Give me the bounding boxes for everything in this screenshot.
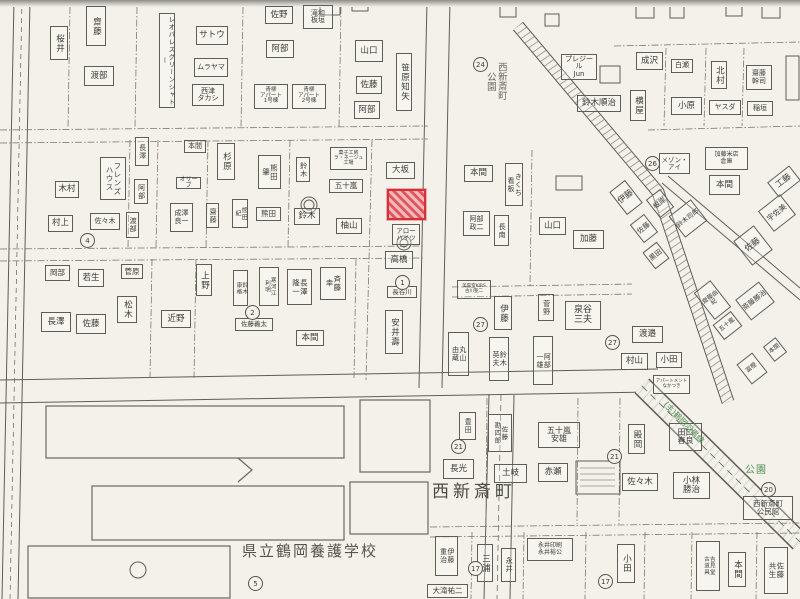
building-label: 阿部 政二 — [463, 211, 490, 236]
building-label: 本間 — [184, 140, 206, 153]
building-label: オリーブ — [176, 177, 201, 189]
building-label: 五十嵐 — [329, 179, 363, 193]
building-label: 柚山 — [336, 218, 362, 234]
building-label: 長澤 — [135, 137, 149, 166]
map-number-marker: 21 — [451, 439, 466, 454]
building-label: 吉見堂 古道具 — [696, 541, 720, 591]
building-label: きくち 看板 — [505, 163, 523, 206]
building-label: 丸山 由蔵 — [448, 332, 469, 376]
building-label: 長南 — [494, 215, 509, 246]
building-label: 加藤米店 倉庫 — [705, 147, 748, 170]
building-label: 桜井 — [50, 26, 68, 60]
map-number-marker: 20 — [761, 482, 776, 497]
building-label: 上野 — [196, 264, 212, 296]
building-label: 土岐 — [494, 464, 527, 483]
building-label: 成沢 — [636, 52, 663, 70]
building-label: 松木 — [117, 296, 137, 323]
building-label: 鈴木 英夫 — [489, 337, 509, 381]
building-label: 木村 — [55, 181, 79, 198]
building-label: レオパレスグリーンシャトー — [159, 13, 175, 108]
building-label: 佐々木 — [90, 213, 120, 230]
building-label: 加藤 — [573, 230, 604, 249]
building-label: 岡部 — [45, 265, 70, 281]
building-label: 熊田 紀 — [232, 199, 248, 228]
building-label: 本間 — [728, 552, 746, 587]
building-label: 伊藤 — [494, 296, 512, 330]
building-label: 齋藤 — [86, 6, 106, 46]
building-label: 青柳 アパート 1号棟 — [254, 84, 288, 109]
building-label: 永井 — [501, 548, 516, 582]
map-number-marker: 1 — [395, 275, 410, 290]
building-label: 笹原知矢 — [396, 53, 412, 111]
building-label: 泉谷 三夫 — [565, 301, 601, 330]
map-number-marker: 4 — [80, 233, 95, 248]
building-label: 小田 — [656, 352, 682, 368]
building-label: 成澤 良一 — [170, 203, 193, 232]
building-label: 長光 — [443, 459, 474, 479]
building-label: 阿部 — [134, 179, 148, 204]
map-number-marker: 2 — [245, 305, 260, 320]
building-label: 赤瀬 — [538, 463, 568, 482]
building-label: 熊田 肇 — [258, 155, 281, 189]
building-label: 青柳 アパート 2号棟 — [292, 84, 326, 109]
building-label: 佐藤 — [76, 314, 106, 334]
scan-edge — [0, 0, 800, 7]
building-label: 若生 — [78, 269, 104, 287]
school-building-outlines — [28, 400, 430, 598]
area-label: 公園 — [745, 465, 767, 477]
map-number-marker: 24 — [473, 57, 488, 72]
building-label: 大滝祐二 — [427, 584, 468, 598]
building-label: 西新斎町 公民館 — [743, 496, 793, 520]
building-label: 佐藤 共生 — [764, 547, 788, 594]
building-label: フレンズ ハウス — [100, 157, 126, 200]
building-label: 熊田 — [256, 207, 281, 221]
building-label: 鈴木 康格 — [233, 270, 248, 306]
building-label: 鈴木 — [296, 157, 310, 182]
building-label: 五十嵐 安雄 — [538, 422, 580, 448]
building-label: 菅野 — [538, 294, 554, 321]
building-label: ヤスダ — [709, 100, 741, 115]
building-label: 伊藤 重治 — [435, 536, 458, 576]
building-label: 佐藤義太 — [235, 318, 273, 331]
building-label: 齋藤 — [206, 203, 219, 228]
building-label: 大坂 — [386, 162, 415, 179]
map-number-marker: 27 — [473, 317, 488, 332]
building-label: 本間 — [709, 175, 740, 195]
building-label: 寒河江 利明 — [259, 267, 279, 306]
building-label: 山口 — [355, 40, 383, 62]
building-label: 横屋 — [630, 90, 646, 121]
building-label: 村上 — [48, 215, 73, 232]
building-label: 安井壽 — [385, 310, 403, 354]
area-label: 県立鶴岡養護学校 — [242, 543, 378, 560]
building-label: 美容室KIRS 古川聖二 — [457, 280, 491, 299]
building-label: ムラヤマ — [194, 58, 228, 77]
map-number-marker: 27 — [605, 335, 620, 350]
building-label: 阿部 — [354, 101, 380, 119]
building-label: 鈴木 — [294, 208, 320, 225]
building-label: 本間 — [296, 330, 324, 346]
building-label: 渡部 — [126, 212, 139, 238]
building-label: 杉原 — [217, 143, 235, 180]
building-label: 滝和 板垣 — [303, 5, 333, 29]
building-label: 小林 勝治 — [673, 472, 710, 499]
building-label: サトウ — [196, 26, 228, 45]
building-label: 鈴木順治 — [577, 95, 621, 112]
map-number-marker: 5 — [248, 576, 263, 591]
building-label: アパートメント なかつき — [653, 375, 690, 394]
building-label: 佐野 — [265, 6, 293, 24]
building-label: 豊田 — [459, 412, 476, 440]
building-label: アロー ハイツ — [392, 224, 420, 245]
map-number-marker: 26 — [645, 156, 660, 171]
building-label: 渡邉 — [632, 326, 663, 343]
building-label: 齋藤 幹司 — [746, 65, 772, 90]
building-label: 小田 — [617, 544, 635, 583]
residential-map: 齋藤桜井渡部レオパレスグリーンシャトーサトウムラヤマ西津 タカシ佐野滝和 板垣阿… — [0, 0, 800, 599]
building-label: メゾン・ アイ — [659, 153, 690, 174]
building-label: 斉藤 幸 — [320, 267, 346, 300]
building-label: 北村 — [711, 61, 727, 89]
building-label: 阿部 — [266, 40, 294, 58]
building-label: 佐藤 — [356, 76, 382, 94]
building-label: 長澤 — [41, 312, 71, 332]
building-label: 菅原 — [121, 264, 143, 279]
building-label: 西津 タカシ — [192, 84, 224, 106]
building-label: 白瀬 — [671, 59, 693, 73]
building-label: 菓子工房 ラ・ネージュ 工場 — [330, 147, 367, 170]
building-label: 殿岡 — [628, 424, 645, 454]
map-number-marker: 17 — [468, 561, 483, 576]
building-label: 長澤 隆一 — [287, 269, 312, 305]
building-label: 稲垣 — [747, 101, 773, 116]
building-label: 佐藤 勘四郎 — [488, 414, 512, 452]
building-label: 高橋 — [385, 251, 413, 269]
building-label: 佐々木 — [622, 473, 658, 491]
building-label: 近野 — [161, 310, 191, 328]
building-label: 阿部 一雄 — [533, 336, 553, 385]
building-label: 山口 — [539, 217, 566, 235]
building-label: 小原 — [671, 97, 702, 115]
building-label: 渡部 — [84, 66, 114, 86]
highlighted-parcel[interactable] — [387, 189, 426, 220]
building-label: 本間 — [464, 165, 493, 182]
map-number-marker: 17 — [598, 574, 613, 589]
area-label: 西新斎町 — [432, 483, 516, 503]
building-label: 永井印刷 永井裕公 — [527, 538, 573, 561]
building-label: 村山 — [621, 353, 648, 370]
building-label: プレジール Jun — [561, 54, 597, 80]
map-number-marker: 21 — [607, 449, 622, 464]
